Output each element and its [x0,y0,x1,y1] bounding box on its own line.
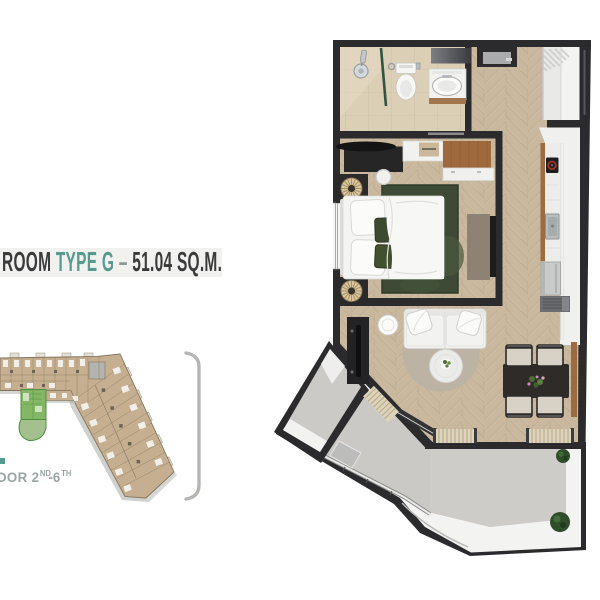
svg-text:ROOM TYPE G – 51.04 SQ.M.: ROOM TYPE G – 51.04 SQ.M. [2,246,222,277]
svg-text:OOR 2: OOR 2 [0,470,39,485]
svg-text:TH: TH [61,469,71,478]
svg-text:-6: -6 [48,470,60,485]
